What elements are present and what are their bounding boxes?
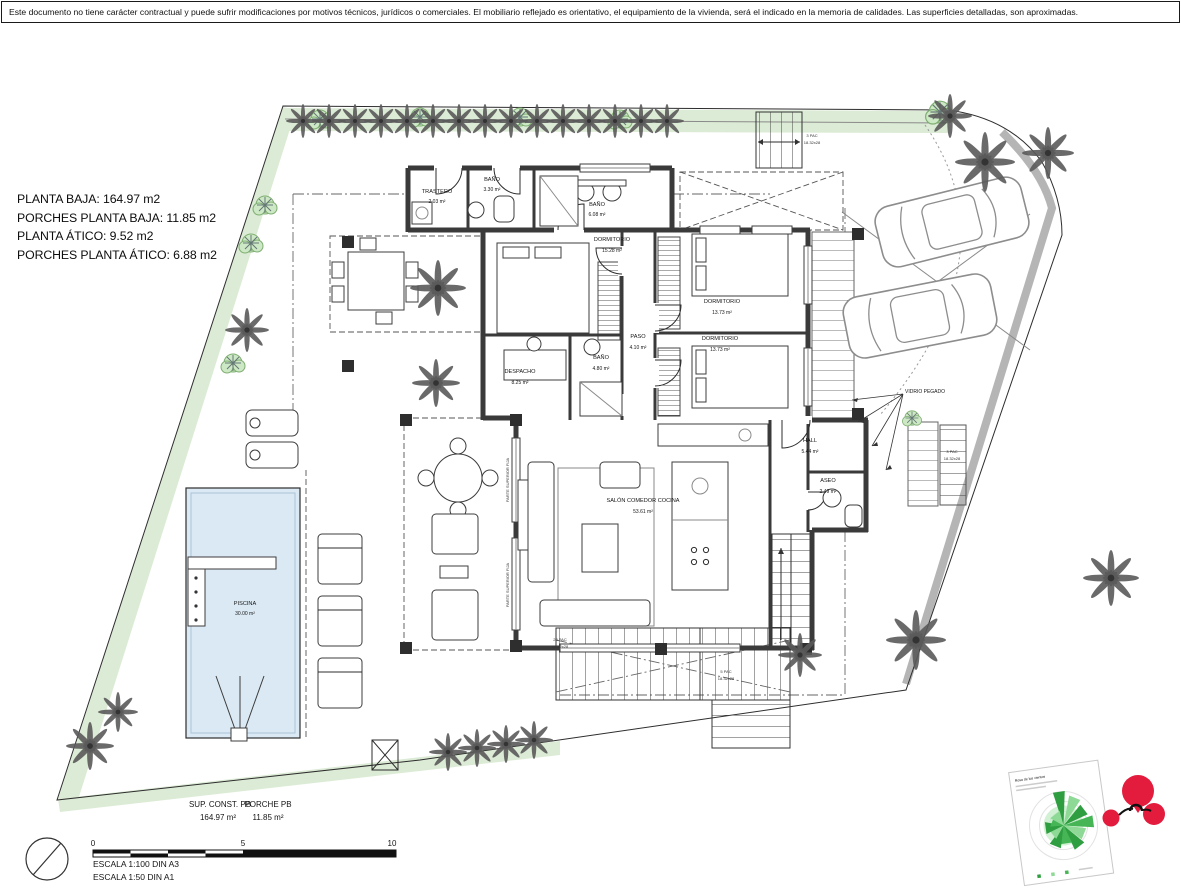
wardrobe — [658, 237, 680, 329]
svg-text:15.28 m²: 15.28 m² — [602, 248, 622, 254]
room-label-dormitorio-a: DORMITORIO — [704, 299, 741, 305]
svg-text:4.80 m²: 4.80 m² — [593, 366, 610, 372]
window-note: PARTE SUPERIOR FIJA — [505, 458, 510, 503]
room-label-dormitorio-1528: DORMITORIO — [594, 237, 631, 243]
glass-note: VIDRIO PEGADO — [905, 389, 945, 395]
svg-text:53.61 m²: 53.61 m² — [633, 509, 653, 515]
svg-text:13.73 m²: 13.73 m² — [712, 310, 732, 316]
scale-tick-10: 10 — [388, 839, 397, 848]
building — [342, 112, 966, 748]
svg-text:8.25 m²: 8.25 m² — [512, 380, 529, 386]
stair-note: 5 PAC — [720, 669, 731, 674]
room-label-salon: SALÓN COMEDOR COCINA — [606, 497, 679, 504]
svg-text:2.03 m²: 2.03 m² — [429, 199, 446, 205]
room-label-trastero: TRASTERO — [422, 189, 453, 195]
svg-text:18.32x28: 18.32x28 — [944, 456, 961, 461]
room-label-hall: HALL — [803, 438, 817, 444]
surface-totals: SUP. CONST. PB 164.97 m² PORCHE PB 11.85… — [189, 800, 292, 822]
svg-text:5.44 m²: 5.44 m² — [802, 449, 819, 455]
porch-value: 11.85 m² — [253, 813, 284, 822]
floor-plan-canvas: TRASTERO 2.03 m² BAÑO 3.30 m² BAÑO 6.08 … — [0, 0, 1181, 892]
svg-text:18.32x28: 18.32x28 — [718, 676, 735, 681]
room-label-paso: PASO — [630, 334, 646, 340]
svg-text:3.30 m²: 3.30 m² — [484, 187, 501, 193]
floor-plan-sheet: Este documento no tiene carácter contrac… — [0, 0, 1181, 892]
const-value: 164.97 m² — [200, 813, 236, 822]
room-label-bano-330: BAÑO — [484, 176, 501, 183]
stair-note: 3 PAC — [946, 449, 957, 454]
escala-line-2: ESCALA 1:50 DIN A1 — [93, 872, 175, 882]
const-label: SUP. CONST. PB — [189, 800, 251, 809]
svg-text:18.32x28: 18.32x28 — [804, 140, 821, 145]
scale-tick-0: 0 — [91, 839, 96, 848]
porch-label: PORCHE PB — [244, 800, 291, 809]
windrose-card: Rosa de los vientos — [1009, 760, 1114, 885]
room-label-dormitorio-b: DORMITORIO — [702, 336, 739, 342]
svg-text:4.10 m²: 4.10 m² — [630, 345, 647, 351]
svg-text:6.08 m²: 6.08 m² — [589, 212, 606, 218]
scale-tick-5: 5 — [241, 839, 246, 848]
stair-note: 3 PAC — [806, 133, 817, 138]
svg-text:30.00 m²: 30.00 m² — [235, 611, 255, 617]
escala-line-1: ESCALA 1:100 DIN A3 — [93, 859, 179, 869]
parked-cars — [840, 174, 1032, 361]
room-label-bano-608: BAÑO — [589, 201, 606, 208]
stairs-side-entry — [940, 425, 966, 505]
entry-deck — [908, 422, 938, 506]
brand-logo — [1103, 775, 1166, 827]
stairs-exterior-top — [756, 112, 802, 168]
svg-text:2.49 m²: 2.49 m² — [820, 489, 837, 495]
stairs-interior — [772, 534, 810, 646]
room-label-despacho: DESPACHO — [505, 369, 537, 375]
scale-bar: 0 5 10 ESCALA 1:100 DIN A3 ESCALA 1:50 D… — [91, 839, 397, 882]
stair-note: 23 PAC — [553, 637, 567, 642]
car — [872, 174, 1033, 270]
north-indicator — [26, 838, 68, 880]
room-label-bano-480: BAÑO — [593, 354, 610, 361]
svg-text:18.32x28: 18.32x28 — [552, 644, 569, 649]
svg-text:13.73 m²: 13.73 m² — [710, 347, 730, 353]
window-note: PARTE SUPERIOR FIJA — [505, 563, 510, 608]
car — [840, 271, 999, 360]
room-label-aseo: ASEO — [820, 478, 836, 484]
room-label-piscina: PISCINA — [234, 601, 257, 607]
